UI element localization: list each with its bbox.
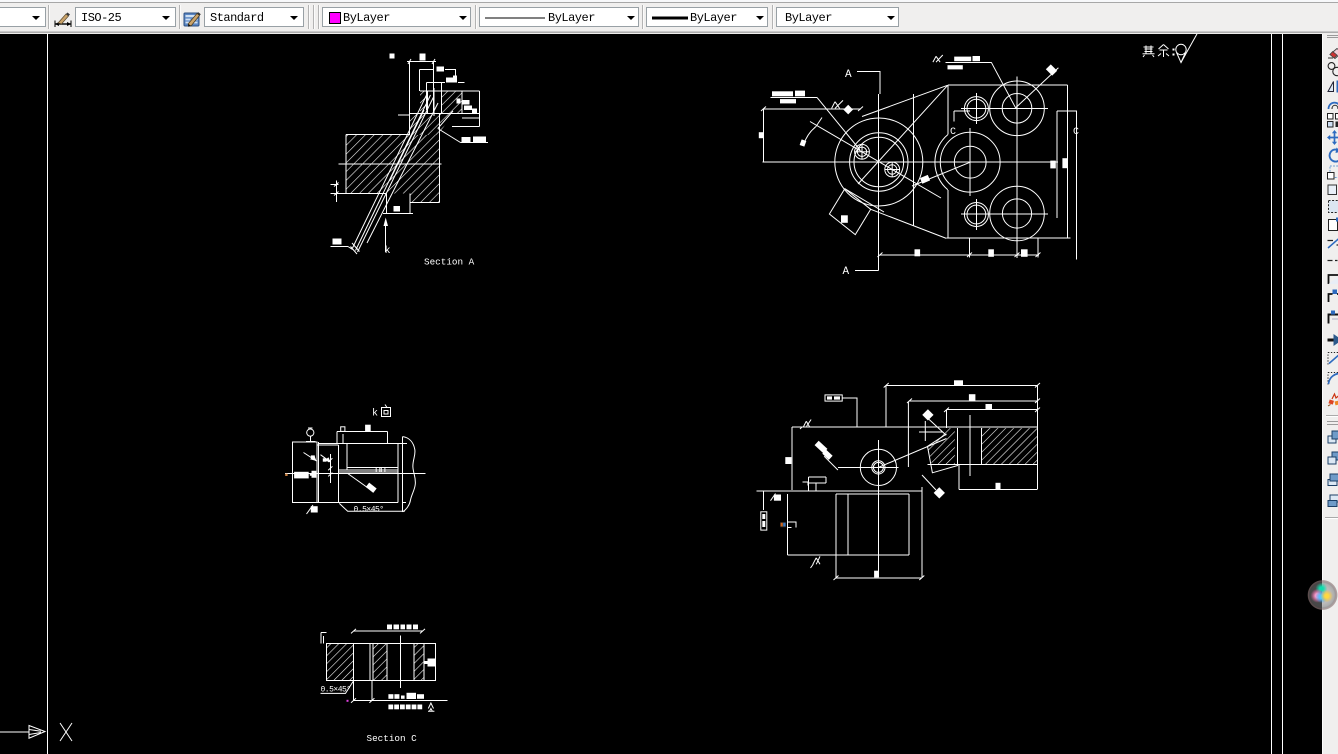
svg-text:A: A (843, 266, 850, 278)
svg-text:0.5×45°: 0.5×45° (354, 506, 384, 515)
svg-text:Section A: Section A (424, 257, 475, 268)
svg-text:Section C: Section C (367, 733, 418, 744)
svg-text:k: k (372, 408, 378, 420)
svg-text:A: A (845, 69, 852, 81)
svg-text:k: k (385, 245, 391, 257)
svg-text:C: C (950, 127, 956, 138)
